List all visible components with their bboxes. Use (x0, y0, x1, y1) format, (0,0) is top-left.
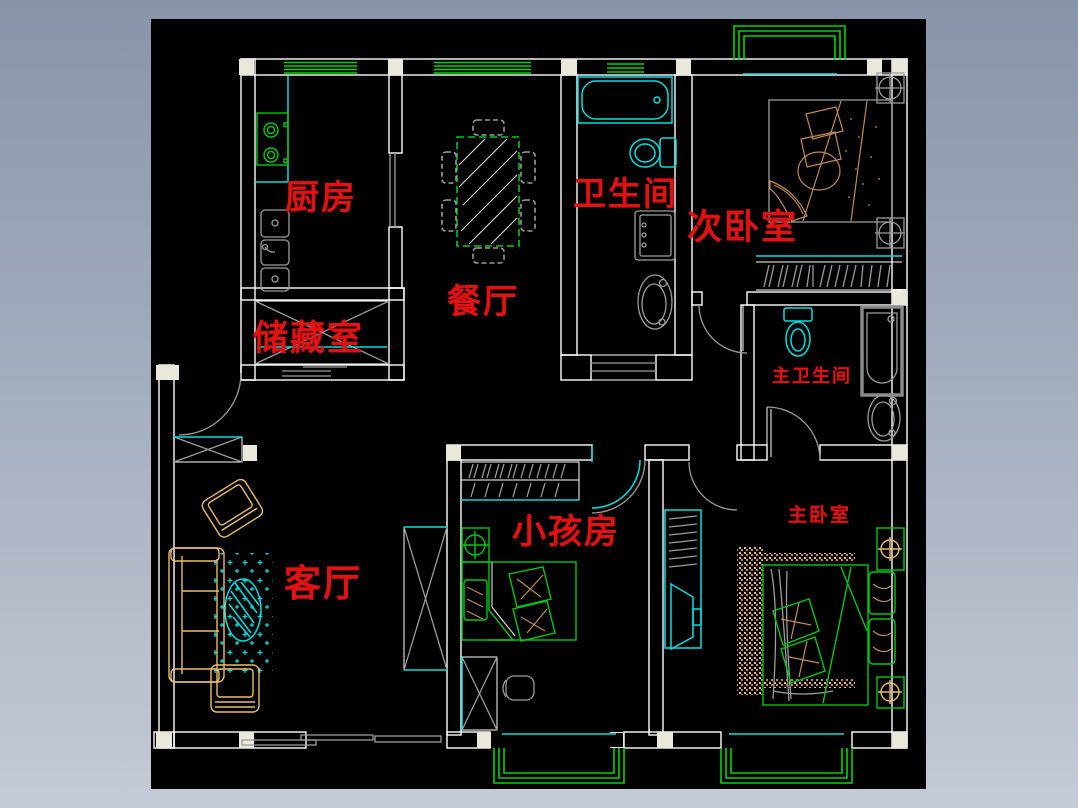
floor-plan-drawing (151, 19, 926, 789)
stove-icon (257, 113, 288, 165)
kitchen-sink-icon (261, 210, 289, 291)
rug-icon (214, 553, 273, 673)
toilet-icon (784, 308, 812, 356)
single-bed-icon (462, 562, 576, 641)
counter-icon (255, 76, 288, 182)
room-label-living-room: 客厅 (284, 566, 362, 603)
wardrobe-hangers-icon (461, 462, 579, 500)
shoe-cabinet-icon (174, 437, 242, 462)
washing-machine-icon (635, 211, 675, 260)
tv-cabinet-icon (404, 527, 447, 670)
desk-chair-icon (503, 676, 534, 700)
window-icon (284, 61, 644, 74)
armchair-icon (200, 477, 265, 539)
nightstand-icon (461, 528, 489, 562)
double-bed-icon (737, 547, 895, 705)
room-label-children-room: 小孩房 (512, 516, 620, 550)
bathtub-icon (862, 307, 902, 395)
room-label-dining: 餐厅 (447, 286, 519, 320)
double-bed-icon (769, 100, 892, 222)
pedestal-sink-icon (868, 395, 900, 441)
dining-table-icon (457, 137, 519, 246)
dining-chair-icon (442, 120, 535, 263)
room-label-secondary-bedroom: 次卧室 (687, 210, 798, 245)
cad-viewer-frame: 厨房 餐厅 卫生间 次卧室 储藏室 主卫生间 小孩房 客厅 主卧室 (0, 0, 1078, 808)
room-label-master-bathroom: 主卫生间 (772, 367, 852, 385)
pedestal-sink-icon (638, 275, 672, 329)
room-label-storage: 储藏室 (253, 321, 364, 356)
nightstand-icon (877, 528, 904, 708)
toilet-icon (630, 138, 676, 167)
bay-window-icon (491, 26, 852, 783)
storage-crate-icon (462, 657, 497, 730)
room-label-bathroom: 卫生间 (573, 179, 678, 212)
bathtub-icon (578, 77, 672, 123)
drawing-canvas: 厨房 餐厅 卫生间 次卧室 储藏室 主卫生间 小孩房 客厅 主卧室 (151, 19, 926, 789)
room-label-kitchen: 厨房 (285, 182, 357, 216)
wardrobe-hangers-icon (756, 256, 902, 290)
tv-cabinet-icon (665, 510, 701, 649)
room-label-master-bedroom: 主卧室 (788, 506, 851, 525)
